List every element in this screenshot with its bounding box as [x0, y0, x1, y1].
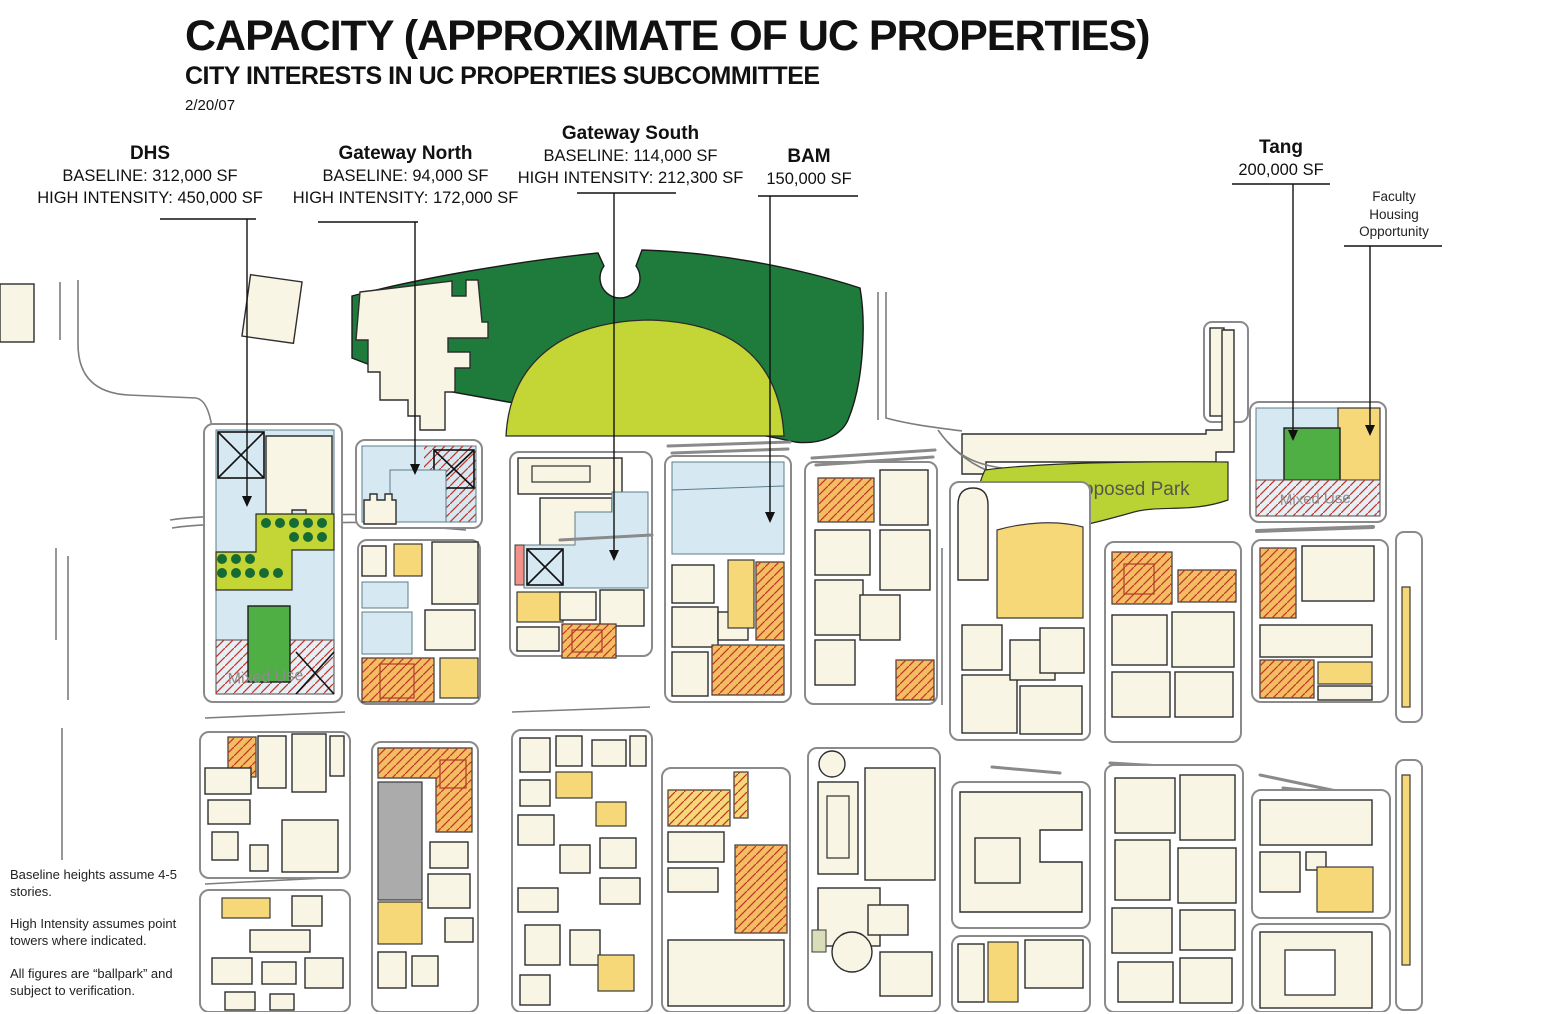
orange-hatched-parcel [1260, 548, 1296, 618]
orange-hatched-parcel [1260, 660, 1314, 698]
block-c8 [1252, 790, 1390, 918]
callout-tang-name: Tang [1228, 136, 1334, 160]
callout-tang: Tang 200,000 SF [1228, 136, 1334, 182]
block-c8b [1252, 924, 1390, 1012]
orange-hatched-parcel [562, 624, 616, 658]
orange-hatched-parcel [896, 660, 934, 700]
edge-building [0, 284, 34, 342]
long-building [962, 330, 1234, 474]
block-c2 [372, 742, 478, 1012]
page-subtitle: CITY INTERESTS IN UC PROPERTIES SUBCOMMI… [185, 62, 1149, 91]
callout-faculty-line3: Opportunity [1348, 223, 1440, 241]
block-c7 [1105, 765, 1243, 1012]
callout-bam: BAM 150,000 SF [753, 145, 865, 191]
block-c5 [808, 748, 940, 1012]
callout-tang-sf: 200,000 SF [1228, 160, 1334, 182]
callout-gateway-north-baseline: BASELINE: 94,000 SF [283, 166, 528, 188]
block-b8 [1105, 542, 1241, 742]
callout-gateway-north: Gateway North BASELINE: 94,000 SF HIGH I… [283, 142, 528, 209]
callout-faculty-line2: Housing [1348, 206, 1440, 224]
block-b10 [1252, 540, 1388, 702]
note-ballpark: All figures are “ballpark” and subject t… [10, 965, 182, 999]
note-high-intensity: High Intensity assumes point towers wher… [10, 915, 182, 949]
callout-gateway-south: Gateway South BASELINE: 114,000 SF HIGH … [513, 122, 748, 189]
mixed-use-label: Mixed Use [1280, 490, 1351, 509]
callout-dhs-baseline: BASELINE: 312,000 SF [20, 166, 280, 188]
street-bold-line [1257, 527, 1373, 531]
block-c4 [662, 768, 790, 1012]
right-edge-blocks [1396, 532, 1422, 1010]
callout-faculty-housing: Faculty Housing Opportunity [1348, 188, 1440, 241]
header: CAPACITY (APPROXIMATE OF UC PROPERTIES) … [185, 14, 1149, 114]
callout-gateway-north-name: Gateway North [283, 142, 528, 166]
gray-building [378, 782, 422, 900]
callout-bam-sf: 150,000 SF [753, 169, 865, 191]
tang-block: Mixed Use [1250, 402, 1386, 522]
orange-hatched-parcel [818, 478, 874, 522]
block-c1 [200, 732, 350, 878]
note-baseline: Baseline heights assume 4-5 stories. [10, 866, 182, 900]
block-c6b [952, 936, 1090, 1012]
callout-gateway-south-baseline: BASELINE: 114,000 SF [513, 146, 748, 168]
callout-dhs-name: DHS [20, 142, 280, 166]
block-b6 [805, 462, 937, 704]
orange-hatched-parcel [1178, 570, 1236, 602]
orange-hatched-parcel [362, 658, 434, 702]
park-dark-green [352, 250, 863, 443]
block-c1b [200, 890, 350, 1012]
park-building-footprint [356, 280, 488, 430]
callout-gateway-south-high: HIGH INTENSITY: 212,300 SF [513, 168, 748, 190]
orange-hatched-parcel [1112, 552, 1172, 604]
block-c6 [952, 782, 1090, 928]
callout-dhs-high: HIGH INTENSITY: 450,000 SF [20, 188, 280, 210]
topleft-building [242, 275, 302, 344]
yellow-hatched-parcel [668, 790, 730, 826]
block-c3 [512, 730, 652, 1012]
callout-gateway-north-high: HIGH INTENSITY: 172,000 SF [283, 188, 528, 210]
bam-block [665, 456, 791, 702]
page-date: 2/20/07 [185, 97, 1149, 114]
page: { "header": { "title": "CAPACITY (APPROX… [0, 0, 1564, 1012]
faculty-housing-parcel [1338, 408, 1380, 480]
orange-hatched-parcel [712, 645, 784, 695]
callout-dhs: DHS BASELINE: 312,000 SF HIGH INTENSITY:… [20, 142, 280, 209]
street-sliver [942, 545, 950, 705]
dhs-block: Mixed Use [204, 424, 342, 702]
callout-bam-name: BAM [753, 145, 865, 169]
yellow-hatched-parcel [734, 772, 748, 818]
gateway-south-block [510, 452, 652, 658]
orange-hatched-parcel [756, 562, 784, 640]
callout-faculty-line1: Faculty [1348, 188, 1440, 206]
block-b3 [358, 540, 480, 704]
gateway-north-block [356, 440, 482, 528]
orange-hatched-parcel [735, 845, 787, 933]
page-title: CAPACITY (APPROXIMATE OF UC PROPERTIES) [185, 14, 1149, 59]
footnotes: Baseline heights assume 4-5 stories. Hig… [10, 866, 182, 1014]
block-b7 [950, 482, 1090, 740]
callout-gateway-south-name: Gateway South [513, 122, 748, 146]
